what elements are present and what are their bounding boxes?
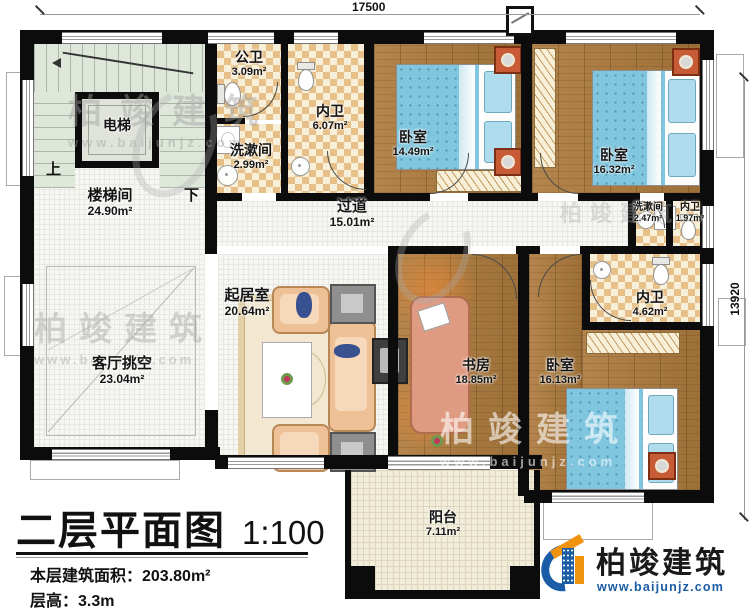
room-label-elevator: 电梯 bbox=[103, 118, 131, 134]
nightstand bbox=[494, 148, 522, 176]
window bbox=[702, 60, 714, 150]
logo-tower-icon bbox=[562, 548, 574, 584]
toilet bbox=[224, 82, 241, 106]
title-underline bbox=[16, 552, 308, 555]
room-label-balcony: 阳台 7.11m² bbox=[426, 510, 460, 538]
bed-sheet bbox=[625, 389, 639, 489]
stair-treads bbox=[34, 44, 205, 92]
building-area-info: 本层建筑面积：203.80m² bbox=[30, 562, 211, 586]
room-label-inner-bath-2: 内卫 1.97m² bbox=[676, 202, 705, 223]
wall bbox=[345, 566, 375, 598]
wall bbox=[518, 246, 529, 496]
sink bbox=[593, 261, 611, 279]
wall bbox=[468, 193, 538, 201]
stairs-down-label: 下 bbox=[184, 184, 199, 205]
nightstand bbox=[648, 452, 676, 480]
plant bbox=[430, 434, 444, 448]
room-label-public-bath: 公卫 3.09m² bbox=[232, 50, 267, 78]
stairs-up-label: 上 bbox=[46, 158, 61, 179]
bed-pillow bbox=[648, 395, 674, 435]
wall bbox=[580, 246, 714, 254]
sink bbox=[291, 157, 310, 176]
wall bbox=[281, 44, 288, 193]
room-label-washroom-1: 洗漱间 2.99m² bbox=[230, 143, 272, 171]
tv-unit bbox=[330, 284, 376, 324]
title-block: 二层平面图 1:100 bbox=[16, 498, 325, 556]
room-label-living-room: 起居室 20.64m² bbox=[224, 288, 269, 318]
person bbox=[334, 344, 360, 358]
brand-name: 柏竣建筑 bbox=[596, 538, 728, 582]
window bbox=[52, 449, 170, 460]
void-perspective-lines bbox=[34, 254, 210, 448]
room-label-living-void: 客厅挑空 23.04m² bbox=[92, 356, 152, 386]
chimney bbox=[506, 6, 534, 36]
title-underline-thin bbox=[16, 557, 308, 558]
dimension-line-top bbox=[40, 14, 700, 15]
window bbox=[552, 492, 644, 503]
window bbox=[566, 32, 676, 44]
room-label-inner-bath-3: 内卫 4.62m² bbox=[633, 290, 668, 318]
bed-pillow bbox=[484, 71, 512, 113]
window bbox=[22, 284, 34, 346]
window bbox=[424, 32, 514, 44]
window bbox=[702, 264, 714, 326]
stair-arrow-head bbox=[52, 58, 61, 68]
room-label-bedroom-1: 卧室 14.49m² bbox=[393, 130, 434, 158]
bed-pillow bbox=[668, 79, 696, 123]
dimension-right-value: 13920 bbox=[728, 269, 742, 329]
nightstand bbox=[494, 46, 522, 74]
balcony-door bbox=[388, 456, 490, 470]
wall bbox=[666, 193, 673, 254]
window bbox=[62, 32, 162, 44]
room-label-study: 书房 18.85m² bbox=[456, 358, 497, 386]
wall bbox=[582, 254, 590, 328]
window bbox=[294, 32, 338, 44]
wall bbox=[521, 30, 532, 193]
wardrobe bbox=[534, 48, 556, 168]
window bbox=[208, 32, 274, 44]
plan-title: 二层平面图 bbox=[16, 498, 226, 556]
bed-sheet bbox=[647, 71, 661, 185]
title-row: 二层平面图 1:100 bbox=[16, 498, 325, 556]
wall bbox=[217, 118, 245, 124]
window bbox=[22, 80, 34, 176]
brand-website: www.baijunjz.com bbox=[597, 580, 724, 594]
wardrobe bbox=[586, 332, 680, 354]
room-label-inner-bath-1: 内卫 6.07m² bbox=[313, 104, 348, 132]
wall bbox=[205, 193, 242, 201]
toilet bbox=[298, 69, 314, 91]
room-label-hallway: 过道 15.01m² bbox=[330, 199, 375, 229]
plan-scale: 1:100 bbox=[242, 514, 325, 552]
room-label-stairwell: 楼梯间 24.90m² bbox=[87, 188, 132, 218]
sofa bbox=[328, 320, 376, 432]
dimension-line-right bbox=[744, 80, 745, 520]
floor-plan-page: 17500 13920 电梯 上 下 bbox=[0, 0, 750, 613]
window bbox=[228, 457, 324, 469]
logo-tower2-icon bbox=[575, 556, 584, 584]
brand-logo: 柏竣建筑 www.baijunjz.com bbox=[540, 536, 750, 608]
room-label-washroom-2: 洗漱间 2.47m² bbox=[633, 202, 663, 223]
floor-height-info: 层高：3.3m bbox=[30, 587, 114, 611]
room-label-bedroom-2: 卧室 16.32m² bbox=[594, 148, 635, 176]
dimension-top-value: 17500 bbox=[352, 0, 385, 14]
bed-pillow bbox=[668, 133, 696, 177]
wall bbox=[510, 566, 540, 598]
wall bbox=[205, 410, 218, 455]
window-sill bbox=[30, 460, 180, 480]
nightstand bbox=[672, 48, 700, 76]
room-label-bedroom-3: 卧室 16.13m² bbox=[540, 358, 581, 386]
wall bbox=[582, 322, 714, 330]
window-sill bbox=[716, 54, 744, 158]
toilet bbox=[653, 264, 669, 285]
window-sill bbox=[543, 502, 653, 540]
table-flowers bbox=[280, 372, 294, 386]
person bbox=[296, 292, 312, 318]
